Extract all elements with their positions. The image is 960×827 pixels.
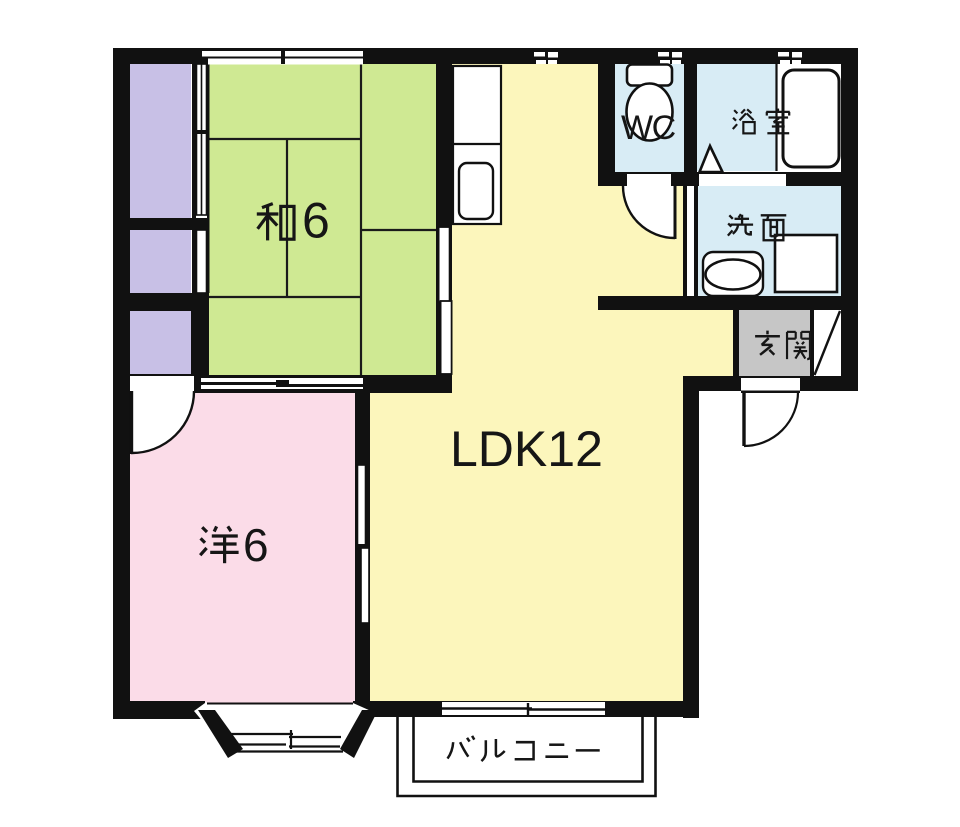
svg-text:LDK12: LDK12 [450,421,603,477]
svg-text:6: 6 [302,193,330,249]
svg-text:6: 6 [243,519,269,571]
svg-text:WC: WC [621,109,676,147]
